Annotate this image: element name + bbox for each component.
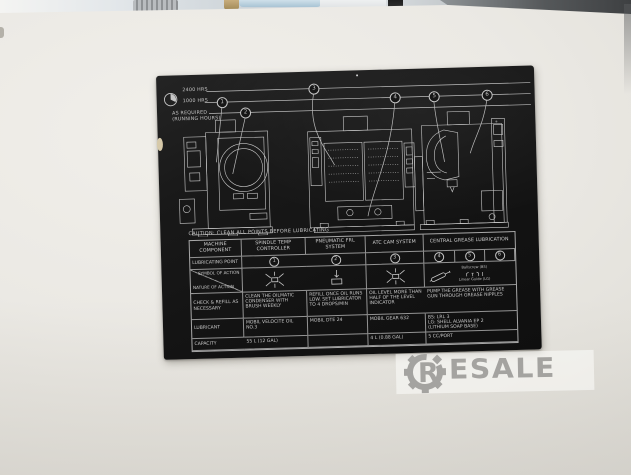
lubricant-cell-spindle: MOBIL VELOCITE OIL NO.3 (244, 317, 309, 338)
check-cell-atc: OIL LEVEL MORE THAN HALF OF THE LEVEL IN… (367, 288, 426, 316)
lubricant-cell-grease: BS: LRL 3 LG: SHELL ALVANIA EP 2 (LITHIU… (426, 311, 517, 333)
lubrication-table: MACHINE COMPONENT SPINDLE TEMP CONTROLLE… (189, 231, 519, 352)
point-cell-6: 6 (485, 249, 515, 262)
brass-fitting (224, 0, 239, 10)
interval-2400hrs: 2400 HRS (182, 88, 207, 94)
machine-drawing-1 (177, 119, 272, 238)
grease-gun-icon (426, 264, 457, 285)
interval-1000hrs: 1000 HRS (183, 99, 208, 105)
line-as-required (209, 105, 531, 114)
machine-drawing-2 (307, 115, 416, 233)
note-linear-guide: Linear Guide (LG) (459, 277, 491, 282)
point-cell-4: 4 (424, 251, 455, 264)
check-cell-grease: PUMP THE GREASE WITH GREASE GUN THROUGH … (425, 285, 517, 314)
capacity-cell-spindle: 55 L (12 GAL) (244, 336, 308, 350)
point-cell-5: 5 (455, 250, 485, 263)
check-cell-pneumatic: REFILL ONCE OIL RUNS LOW. SET LUBRICATOR… (307, 289, 368, 317)
header-atc-cam: ATC CAM SYSTEM (366, 235, 424, 254)
lubricant-cell-atc: MOBIL GEAR 632 (368, 314, 427, 335)
lubrication-placard: 2400 HRS 1000 HRS AS REQUIRED (RUNNING H… (156, 65, 542, 359)
brush-clean-icon (262, 270, 286, 289)
watermark-text: ESALE (449, 353, 557, 386)
machine-drawing-3 (413, 110, 508, 230)
header-pneumatic-frl: PNEUMATIC FRL SYSTEM (306, 236, 366, 255)
header-spindle-temp: SPINDLE TEMP CONTROLLER (242, 238, 306, 257)
symbol-cell-grease: Ballscrew (BS) Linear Guide (LG) (424, 261, 516, 288)
row-label-lubricant: LUBRICANT (192, 319, 245, 339)
capacity-cell-grease: 5 CC/PORT (426, 330, 517, 345)
gear-letter: R (418, 358, 440, 389)
capacity-cell-pneumatic (308, 334, 368, 348)
resale-watermark: R ESALE (404, 346, 565, 401)
panel-right-edge-shadow (624, 4, 631, 94)
clock-icon (164, 93, 177, 106)
row-label-check-refill: CHECK & REFILL AS NECESSARY (191, 293, 244, 320)
oil-level-icon (383, 267, 407, 286)
oil-drip-icon (324, 268, 348, 287)
symbol-cell-level (366, 264, 425, 290)
header-machine-component: MACHINE COMPONENT (190, 240, 242, 258)
symbol-cell-clean (242, 267, 307, 293)
blue-tube (239, 0, 321, 7)
machine-diagrams (156, 65, 538, 237)
nature-of-action-label: NATURE OF ACTION (193, 285, 234, 291)
gear-icon: R (404, 349, 451, 396)
machine-panel-photo: 2400 HRS 1000 HRS AS REQUIRED (RUNNING H… (0, 0, 631, 475)
capacity-cell-atc: 4 L (0.88 GAL) (368, 333, 426, 347)
panel-left-notch (0, 27, 4, 38)
symbol-of-action-label: SYMBOL OF ACTION (198, 271, 240, 277)
symbol-cell-drip (306, 265, 367, 291)
line-2400hrs (206, 83, 530, 92)
check-cell-spindle: CLEAN THE OILMATIC CONDENSER WITH BRUSH … (243, 291, 308, 319)
grease-notes: Ballscrew (BS) Linear Guide (LG) (458, 265, 490, 282)
row-label-capacity: CAPACITY (192, 338, 244, 351)
lubricant-cell-pneumatic: MOBIL DTE 24 (308, 315, 369, 336)
note-ballscrew: Ballscrew (BS) (461, 265, 487, 270)
row-label-symbol-nature: SYMBOL OF ACTION NATURE OF ACTION (190, 269, 243, 294)
